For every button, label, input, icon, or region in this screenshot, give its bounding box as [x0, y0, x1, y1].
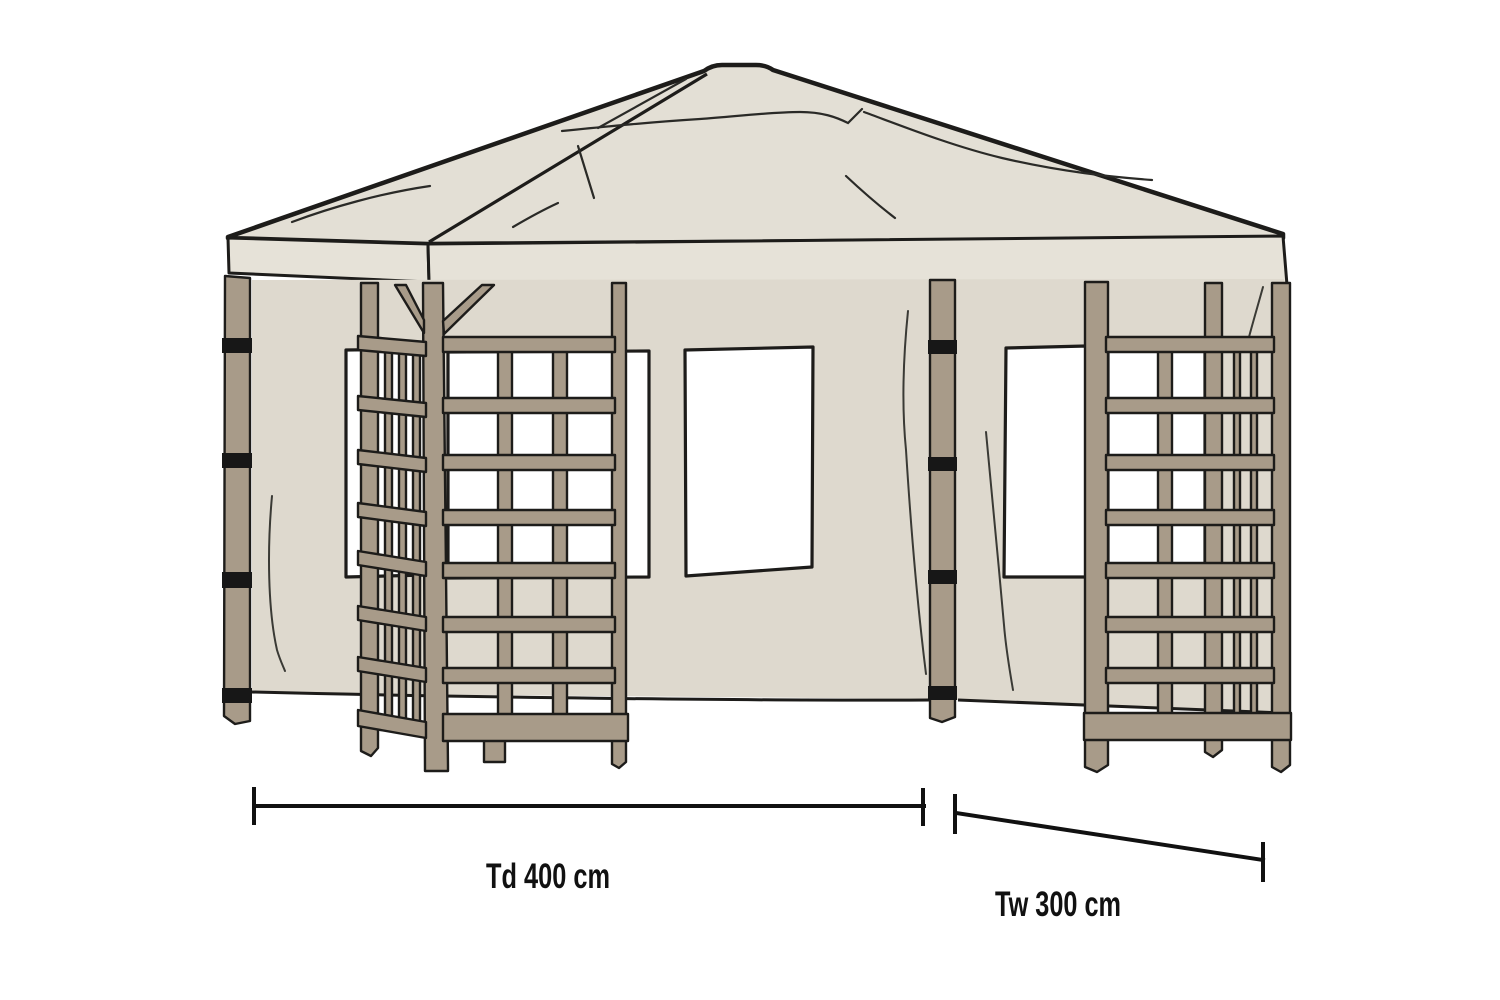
- trellis-rail: [443, 510, 615, 525]
- window-right-wall: [1004, 346, 1086, 577]
- trellis-rail: [1106, 668, 1274, 683]
- trellis-rail: [1106, 617, 1274, 632]
- trellis-rail: [1106, 455, 1274, 470]
- strap: [928, 686, 957, 700]
- trellis-rail: [443, 668, 615, 683]
- strap: [928, 570, 957, 584]
- trellis-rail: [1106, 398, 1274, 413]
- trellis-rail: [443, 617, 615, 632]
- strap: [222, 572, 252, 588]
- dimension-label-depth: Td 400 cm: [486, 857, 610, 896]
- eave-fascia-side: [228, 238, 429, 282]
- trellis-rail: [443, 455, 615, 470]
- strap: [222, 453, 252, 468]
- roof-canopy: [228, 65, 1283, 244]
- trellis-rail: [1106, 337, 1274, 352]
- trellis-rail: [443, 337, 615, 352]
- strap: [928, 340, 957, 354]
- dimension-line-width: [956, 813, 1263, 860]
- trellis-bottom-rail-right: [1084, 713, 1291, 740]
- trellis-rail: [1106, 510, 1274, 525]
- post-rear-right: [1272, 283, 1290, 772]
- strap: [928, 457, 957, 471]
- window-front-center: [685, 347, 813, 576]
- post-right: [1085, 282, 1108, 772]
- trellis-rail: [443, 398, 615, 413]
- trellis-rail: [1106, 563, 1274, 578]
- gazebo-illustration: Td 400 cm Tw 300 cm: [0, 0, 1500, 1000]
- dimension-depth: [254, 789, 924, 824]
- trellis-bottom-rail-left: [443, 714, 628, 741]
- roof-canopy-shape: [228, 65, 1283, 244]
- eave-fascia: [228, 236, 1287, 285]
- dimension-width: [955, 796, 1263, 880]
- trellis-rail: [443, 563, 615, 578]
- strap: [222, 688, 252, 703]
- eave-fascia-front: [428, 236, 1287, 285]
- strap: [222, 338, 252, 353]
- dimension-label-width: Tw 300 cm: [995, 885, 1121, 924]
- fascia-corner-seam: [428, 244, 429, 282]
- gazebo-sketch: Td 400 cm Tw 300 cm: [0, 0, 1500, 1000]
